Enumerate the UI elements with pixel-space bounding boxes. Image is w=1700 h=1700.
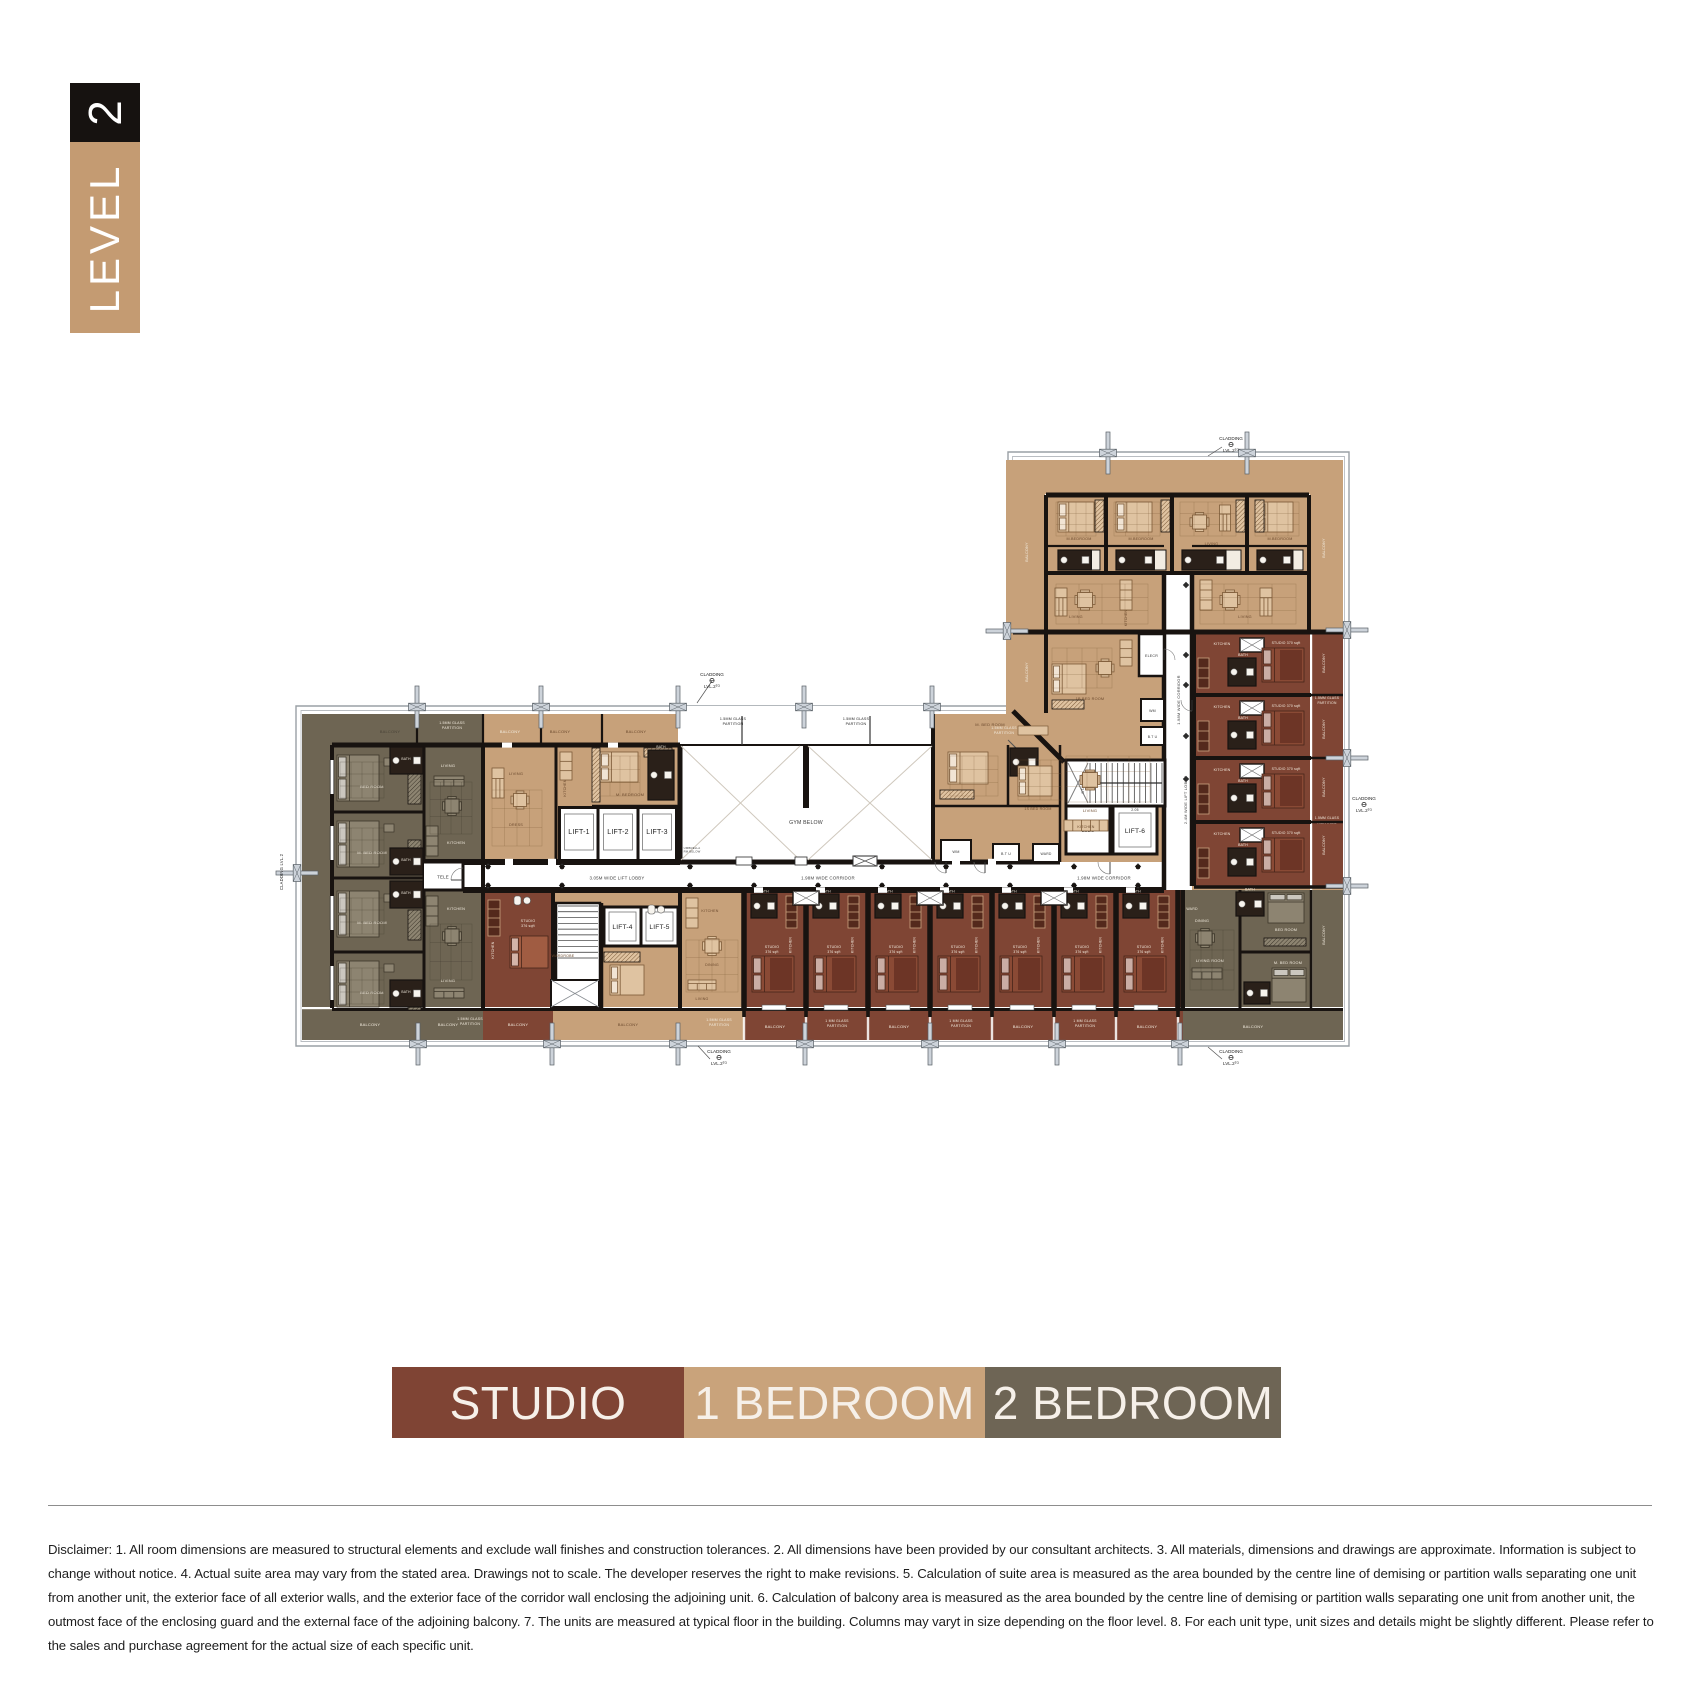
svg-text:STUDIO 370 sqft: STUDIO 370 sqft [1272, 767, 1301, 771]
svg-text:KITCHEN: KITCHEN [1214, 642, 1231, 646]
svg-text:KITCHEN: KITCHEN [563, 779, 567, 796]
svg-text:PARTITION: PARTITION [827, 1024, 847, 1028]
svg-text:LVL.2ᵀᴼ: LVL.2ᵀᴼ [1356, 808, 1373, 813]
svg-text:STUDIO: STUDIO [1137, 945, 1152, 949]
svg-text:BALCONY: BALCONY [626, 729, 647, 734]
svg-text:KITCHEN: KITCHEN [1077, 825, 1094, 829]
svg-text:BATH: BATH [401, 858, 411, 862]
svg-text:PARTITION: PARTITION [442, 726, 462, 730]
svg-text:STUDIO: STUDIO [1013, 945, 1028, 949]
svg-text:LIVING: LIVING [1083, 808, 1097, 813]
svg-text:BATH: BATH [401, 990, 411, 994]
svg-text:BALCONY: BALCONY [1137, 1024, 1158, 1029]
svg-text:LIFT-4: LIFT-4 [612, 924, 632, 931]
svg-text:TELE: TELE [437, 875, 449, 880]
svg-text:BATH: BATH [1245, 888, 1255, 892]
svg-text:STUDIO: STUDIO [951, 945, 966, 949]
svg-text:PARTITION: PARTITION [951, 1024, 971, 1028]
svg-text:STUDIO 370 sqft: STUDIO 370 sqft [1272, 641, 1301, 645]
svg-text:LIFT-3: LIFT-3 [646, 829, 667, 836]
svg-text:STUDIO: STUDIO [765, 945, 780, 949]
svg-text:KITCHEN: KITCHEN [447, 907, 465, 911]
svg-text:BALCONY: BALCONY [550, 729, 571, 734]
svg-text:376 sqft: 376 sqft [1013, 950, 1026, 954]
svg-text:BALCONY: BALCONY [1322, 653, 1326, 673]
svg-text:LIVING: LIVING [1205, 542, 1219, 546]
svg-text:BALCONY: BALCONY [438, 1022, 459, 1027]
svg-text:PARTITION: PARTITION [994, 731, 1014, 735]
svg-text:STUDIO: STUDIO [521, 919, 536, 923]
svg-text:PARTITION: PARTITION [709, 1023, 729, 1027]
svg-text:STUDIO 370 sqft: STUDIO 370 sqft [1272, 831, 1301, 835]
svg-text:LIVING: LIVING [1238, 615, 1252, 619]
svg-text:LVL.2ᵀᴼ: LVL.2ᵀᴼ [1223, 448, 1240, 453]
svg-text:WM: WM [1149, 709, 1156, 713]
svg-text:KITCHEN: KITCHEN [975, 937, 979, 953]
svg-text:376 sqft: 376 sqft [521, 924, 535, 928]
svg-text:1 MM GLASS: 1 MM GLASS [1073, 1019, 1097, 1023]
svg-text:LIFT-2: LIFT-2 [607, 829, 628, 836]
svg-text:KITCHEN: KITCHEN [701, 909, 718, 913]
svg-text:CLADDING: CLADDING [707, 1049, 731, 1054]
svg-text:BALCONY: BALCONY [1322, 719, 1326, 739]
svg-text:BALCONY: BALCONY [500, 729, 521, 734]
svg-text:1.98M WIDE CORRIDOR: 1.98M WIDE CORRIDOR [801, 876, 855, 881]
svg-text:LIVING: LIVING [1069, 615, 1083, 619]
svg-text:BATH: BATH [656, 745, 666, 749]
svg-text:1 MM GLASS: 1 MM GLASS [825, 1019, 849, 1023]
svg-text:BALCONY: BALCONY [889, 1024, 910, 1029]
svg-text:376 sqft: 376 sqft [1075, 950, 1088, 954]
svg-text:BALCONY: BALCONY [1243, 1024, 1264, 1029]
svg-text:BALCONY: BALCONY [1025, 662, 1029, 682]
svg-text:KITCHEN: KITCHEN [1161, 937, 1165, 953]
svg-text:PARTITION: PARTITION [723, 722, 744, 726]
svg-text:KITCHEN: KITCHEN [447, 841, 465, 845]
svg-text:BALCONY: BALCONY [380, 729, 401, 734]
svg-text:B.T U: B.T U [1001, 852, 1011, 856]
svg-text:KITCHEN: KITCHEN [1124, 610, 1128, 627]
svg-text:LIVING: LIVING [441, 763, 455, 768]
svg-text:M. BED ROOM: M. BED ROOM [357, 850, 387, 855]
svg-text:BALCONY: BALCONY [1322, 835, 1326, 855]
svg-text:376 sqft: 376 sqft [889, 950, 902, 954]
svg-text:1.5MM GLASS: 1.5MM GLASS [706, 1018, 732, 1022]
svg-text:CLADDING: CLADDING [1219, 1049, 1243, 1054]
svg-text:CLADDING: CLADDING [700, 672, 724, 677]
svg-text:1.98M WIDE CORRIDOR: 1.98M WIDE CORRIDOR [1077, 876, 1131, 881]
svg-text:BALCONY: BALCONY [508, 1022, 529, 1027]
svg-text:KITCHEN: KITCHEN [1214, 768, 1231, 772]
svg-text:1.98M WIDE CORRIDOR: 1.98M WIDE CORRIDOR [1176, 675, 1181, 724]
svg-text:BALCONY: BALCONY [1013, 1024, 1034, 1029]
svg-text:2.05: 2.05 [1131, 808, 1138, 812]
svg-text:BALCONY: BALCONY [1322, 925, 1326, 945]
svg-text:1S BED ROOM: 1S BED ROOM [1024, 807, 1051, 811]
svg-text:WARDROBE: WARDROBE [552, 954, 575, 958]
svg-text:STUDIO: STUDIO [827, 945, 842, 949]
svg-text:BALCONY: BALCONY [1322, 538, 1326, 558]
svg-text:LIFT-6: LIFT-6 [1125, 828, 1145, 835]
svg-text:LVL.2ᵀᴼ: LVL.2ᵀᴼ [711, 1061, 728, 1066]
svg-text:KITCHEN: KITCHEN [491, 941, 495, 958]
svg-text:BATH: BATH [401, 757, 411, 761]
svg-text:B.T U: B.T U [1148, 735, 1158, 739]
svg-text:BALCONY: BALCONY [765, 1024, 786, 1029]
svg-text:WARD: WARD [1186, 907, 1198, 911]
svg-text:WM: WM [952, 850, 959, 854]
svg-text:LIVING: LIVING [441, 978, 455, 983]
svg-text:BED ROOM: BED ROOM [1275, 928, 1297, 932]
svg-text:LVL.2ᵀᴼ: LVL.2ᵀᴼ [1223, 1061, 1240, 1066]
svg-text:1.5MM GLASS: 1.5MM GLASS [439, 721, 465, 725]
svg-text:1 MM GLASS: 1 MM GLASS [949, 1019, 973, 1023]
svg-text:GYM BELOW: GYM BELOW [789, 820, 823, 826]
svg-text:BED ROOM: BED ROOM [360, 990, 383, 995]
svg-text:1.5MM GLASS: 1.5MM GLASS [1315, 696, 1340, 700]
svg-text:2.4M WIDE LIFT LOBBY: 2.4M WIDE LIFT LOBBY [1183, 776, 1188, 824]
svg-text:1.5MM GLASS: 1.5MM GLASS [991, 726, 1017, 730]
svg-text:STUDIO 370 sqft: STUDIO 370 sqft [1272, 704, 1301, 708]
svg-text:KITCHEN: KITCHEN [913, 937, 917, 953]
svg-text:M. BED ROOM: M. BED ROOM [1274, 961, 1302, 965]
svg-text:RM BELOW: RM BELOW [684, 850, 701, 854]
svg-text:KITCHEN: KITCHEN [1214, 705, 1231, 709]
svg-text:BATH: BATH [1238, 779, 1248, 783]
svg-text:1.5MM GLASS: 1.5MM GLASS [457, 1017, 483, 1021]
svg-text:376 sqft: 376 sqft [951, 950, 964, 954]
svg-text:M.BEDROOM: M.BEDROOM [1067, 537, 1092, 541]
svg-text:DRESS: DRESS [509, 823, 523, 827]
svg-text:BATH: BATH [1238, 843, 1248, 847]
svg-text:BATH: BATH [1238, 653, 1248, 657]
svg-text:1.5MM GLASS: 1.5MM GLASS [1315, 816, 1340, 820]
svg-text:STUDIO: STUDIO [889, 945, 904, 949]
svg-text:PARTITION: PARTITION [460, 1022, 480, 1026]
svg-text:M. BED ROOM: M. BED ROOM [357, 920, 387, 925]
svg-text:M.BEDROOM: M.BEDROOM [1268, 537, 1293, 541]
svg-text:PARTITION: PARTITION [1075, 1024, 1095, 1028]
svg-text:KITCHEN: KITCHEN [1214, 832, 1231, 836]
svg-text:KITCHEN: KITCHEN [851, 937, 855, 953]
svg-text:LIFT-1: LIFT-1 [568, 829, 589, 836]
svg-text:WARD: WARD [1040, 852, 1051, 856]
svg-text:DINING: DINING [1195, 919, 1209, 923]
svg-text:LIVING: LIVING [509, 771, 523, 776]
svg-text:3.05M WIDE LIFT LOBBY: 3.05M WIDE LIFT LOBBY [589, 876, 644, 881]
svg-text:376 sqft: 376 sqft [765, 950, 778, 954]
svg-text:CLADDING LVL.2: CLADDING LVL.2 [279, 853, 284, 890]
svg-text:LVL.2ᵀᴼ: LVL.2ᵀᴼ [704, 684, 721, 689]
svg-text:KITCHEN: KITCHEN [1037, 937, 1041, 953]
svg-text:LIFT-5: LIFT-5 [649, 924, 669, 931]
svg-text:CLADDING: CLADDING [1219, 436, 1243, 441]
svg-text:PARTITION: PARTITION [1317, 701, 1336, 705]
svg-text:KITCHEN: KITCHEN [789, 937, 793, 953]
svg-text:BATH: BATH [401, 891, 411, 895]
svg-text:STUDIO: STUDIO [1075, 945, 1090, 949]
svg-text:BALCONY: BALCONY [1322, 777, 1326, 797]
svg-text:BALCONY: BALCONY [360, 1022, 381, 1027]
svg-text:LIVING: LIVING [696, 997, 709, 1001]
svg-text:KITCHEN: KITCHEN [1099, 937, 1103, 953]
svg-text:1.5MM GLASS: 1.5MM GLASS [843, 717, 870, 721]
svg-text:BED ROOM: BED ROOM [360, 784, 383, 789]
svg-text:1.5MM GLASS: 1.5MM GLASS [720, 717, 747, 721]
svg-text:CLADDING: CLADDING [1352, 796, 1376, 801]
svg-text:BALCONY: BALCONY [618, 1022, 639, 1027]
svg-text:M.BEDROOM: M.BEDROOM [1129, 537, 1154, 541]
svg-text:LIVING ROOM: LIVING ROOM [1196, 958, 1224, 963]
svg-text:BATH: BATH [1238, 716, 1248, 720]
svg-text:BALCONY: BALCONY [1025, 542, 1029, 562]
svg-text:376 sqft: 376 sqft [1137, 950, 1150, 954]
svg-text:376 sqft: 376 sqft [827, 950, 840, 954]
svg-text:ELECR: ELECR [1145, 654, 1158, 658]
svg-text:PARTITION: PARTITION [846, 722, 867, 726]
